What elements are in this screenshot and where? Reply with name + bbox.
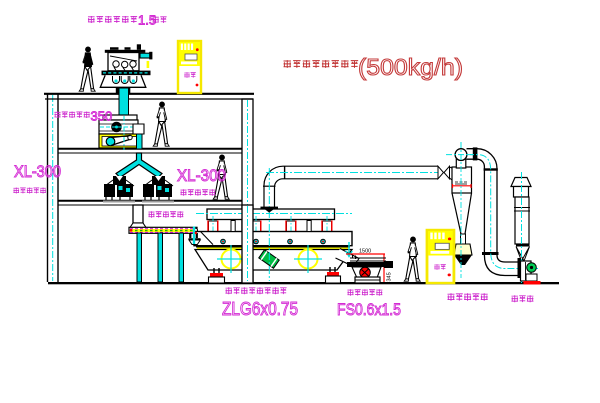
svg-text:350: 350 [91, 109, 113, 124]
svg-text:ZLG6x0.75: ZLG6x0.75 [222, 299, 298, 319]
svg-text:1500: 1500 [359, 249, 371, 255]
svg-text:XL-300: XL-300 [14, 162, 61, 181]
svg-text:345: 345 [387, 272, 393, 281]
svg-text:XL-300: XL-300 [177, 166, 226, 185]
svg-text:FS0.6x1.5: FS0.6x1.5 [337, 300, 401, 319]
svg-text:(500kg/h): (500kg/h) [358, 54, 463, 80]
